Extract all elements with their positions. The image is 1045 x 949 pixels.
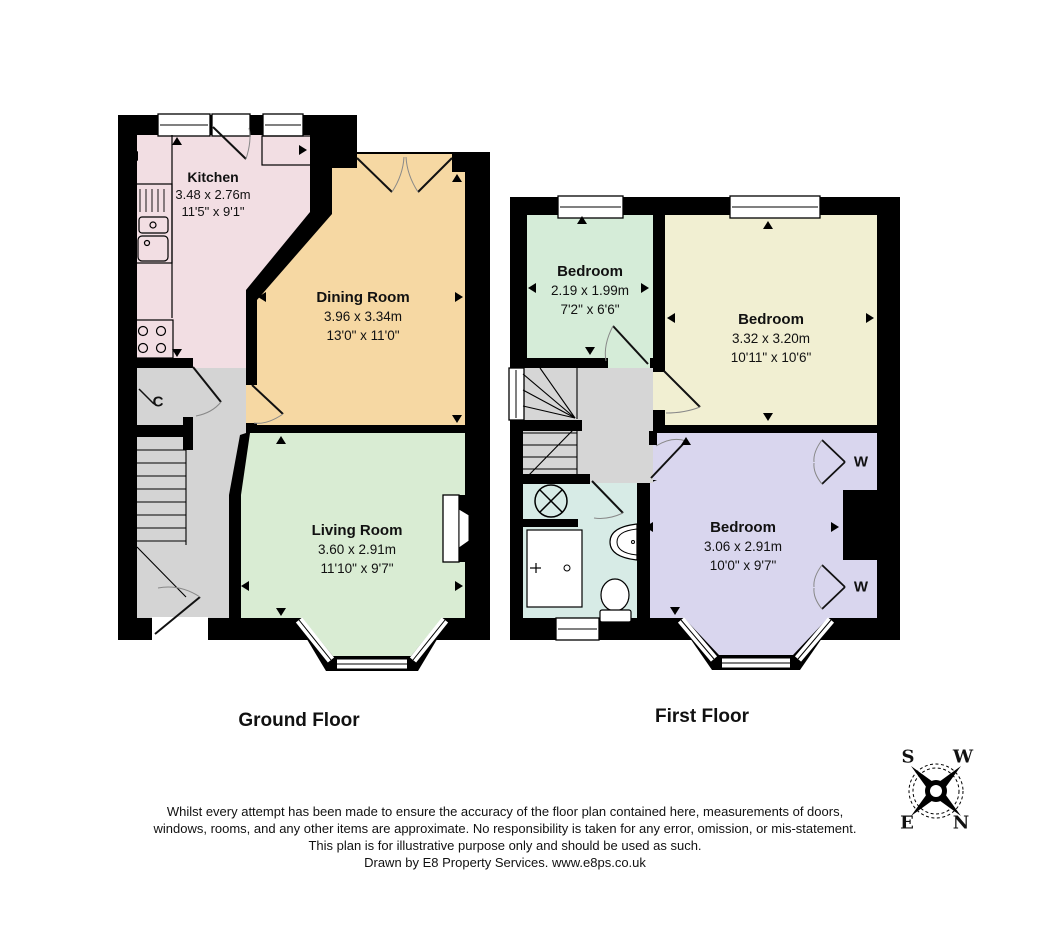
kitchen-label: Kitchen 3.48 x 2.76m 11'5" x 9'1" [175, 169, 250, 220]
bedroom-front-label: Bedroom 3.06 x 2.91m 10'0" x 9'7" [704, 518, 782, 575]
room-dim-metric: 3.48 x 2.76m [175, 186, 250, 203]
ground-floor-title: Ground Floor [238, 710, 359, 732]
disclaimer-line-2: windows, rooms, and any other items are … [105, 820, 905, 837]
fireplace-icon [443, 495, 473, 562]
compass-west-label: W [953, 747, 973, 768]
kitchen-windows [158, 114, 303, 136]
dining-room-label: Dining Room 3.96 x 3.34m 13'0" x 11'0" [316, 288, 409, 345]
compass-north-label: N [953, 813, 969, 834]
disclaimer-text: Whilst every attempt has been made to en… [105, 803, 905, 871]
compass-south-label: S [902, 747, 915, 768]
room-name: Kitchen [175, 169, 250, 186]
compass-rose [909, 764, 963, 818]
wardrobe-label-bottom: W [854, 579, 868, 596]
room-dim-imperial: 11'5" x 9'1" [175, 203, 250, 220]
toilet-icon [601, 579, 629, 611]
cupboard-label: C [153, 394, 164, 411]
first-floor-title: First Floor [655, 706, 749, 728]
bedroom-small-label: Bedroom 2.19 x 1.99m 7'2" x 6'6" [551, 262, 629, 319]
ground-floor-plan [118, 114, 490, 671]
chimney-breast [843, 490, 900, 560]
living-room-label: Living Room 3.60 x 2.91m 11'10" x 9'7" [312, 521, 403, 578]
disclaimer-line-3: This plan is for illustrative purpose on… [105, 837, 905, 854]
wardrobe-label-top: W [854, 454, 868, 471]
disclaimer-line-4: Drawn by E8 Property Services. www.e8ps.… [105, 854, 905, 871]
bedroom-rear-label: Bedroom 3.32 x 3.20m 10'11" x 10'6" [731, 310, 812, 367]
floor-plan-page: Kitchen 3.48 x 2.76m 11'5" x 9'1" Dining… [0, 0, 1045, 949]
disclaimer-line-1: Whilst every attempt has been made to en… [105, 803, 905, 820]
